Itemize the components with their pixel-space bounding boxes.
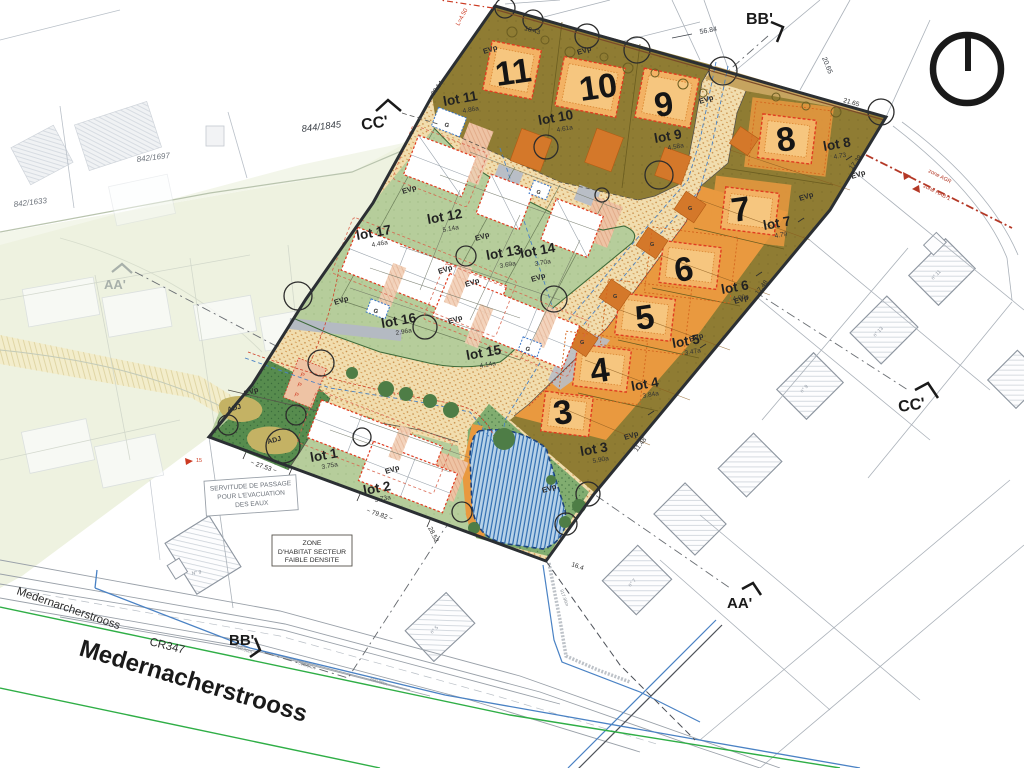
svg-text:15: 15: [196, 458, 202, 464]
svg-text:ZONE: ZONE: [303, 540, 322, 547]
svg-text:G: G: [688, 206, 692, 212]
svg-text:10: 10: [577, 66, 620, 109]
svg-text:G: G: [580, 340, 584, 346]
svg-text:11: 11: [493, 51, 534, 94]
svg-text:AA': AA': [104, 277, 126, 292]
svg-text:AA': AA': [727, 595, 752, 612]
svg-text:BB': BB': [746, 11, 773, 28]
svg-text:FAIBLE DENSITE: FAIBLE DENSITE: [285, 557, 340, 564]
svg-text:G: G: [613, 294, 617, 300]
svg-text:D'HABITAT SECTEUR: D'HABITAT SECTEUR: [278, 549, 346, 556]
svg-text:G: G: [650, 242, 654, 248]
